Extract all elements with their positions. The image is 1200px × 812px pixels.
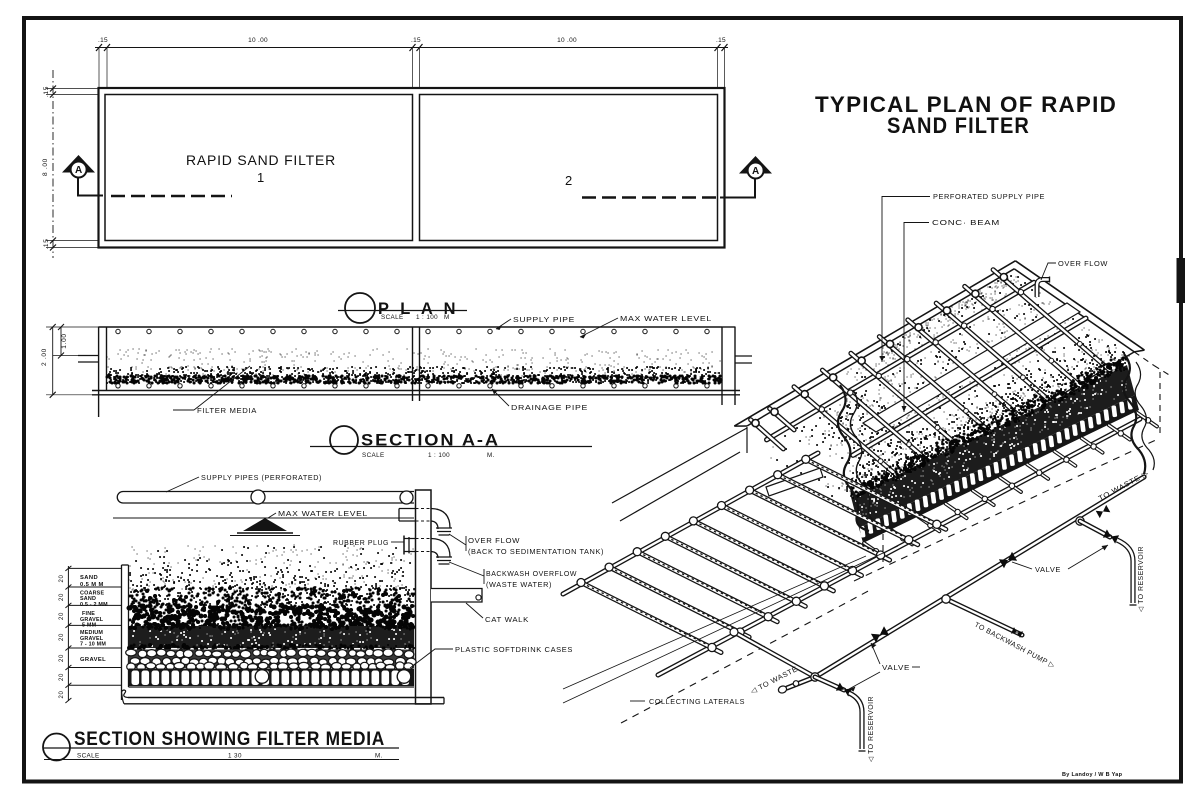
svg-text:8 .00: 8 .00 <box>42 158 49 176</box>
svg-text:RAPID SAND FILTER: RAPID SAND FILTER <box>186 152 336 168</box>
svg-text:PERFORATED SUPPLY PIPE: PERFORATED SUPPLY PIPE <box>933 192 1045 201</box>
svg-text:M: M <box>444 314 450 321</box>
svg-text:MAX WATER LEVEL: MAX WATER LEVEL <box>620 314 712 323</box>
svg-text:SUPPLY PIPES (PERFORATED): SUPPLY PIPES (PERFORATED) <box>201 473 322 482</box>
svg-text:SAND FILTER: SAND FILTER <box>887 113 1030 138</box>
svg-text:20: 20 <box>59 673 65 681</box>
svg-text:SECTION SHOWING FILTER MEDI: SECTION SHOWING FILTER MEDIA <box>74 728 385 750</box>
svg-text:SCALE: SCALE <box>381 314 404 321</box>
svg-text:◁ TO RESERVOIR: ◁ TO RESERVOIR <box>1136 546 1145 612</box>
svg-text:RUBBER PLUG: RUBBER PLUG <box>333 538 389 547</box>
svg-text:FILTER MEDIA: FILTER MEDIA <box>197 406 257 415</box>
svg-text:By Landoy / W B Yap: By Landoy / W B Yap <box>1062 772 1123 778</box>
svg-text:PLASTIC SOFTDRINK CASES: PLASTIC SOFTDRINK CASES <box>455 645 573 654</box>
svg-text:20: 20 <box>59 574 65 582</box>
svg-text:.15: .15 <box>411 37 421 44</box>
svg-text:(BACK TO SEDIMENTATION TANK: (BACK TO SEDIMENTATION TANK) <box>468 547 604 556</box>
svg-text:VALVE: VALVE <box>1035 565 1061 574</box>
svg-text:20: 20 <box>59 612 65 620</box>
svg-text:OVER FLOW: OVER FLOW <box>468 536 520 545</box>
svg-text:SCALE: SCALE <box>77 753 100 760</box>
svg-text:.15: .15 <box>43 238 50 249</box>
svg-text:SUPPLY PIPE: SUPPLY PIPE <box>513 315 575 324</box>
svg-text:SCALE: SCALE <box>362 452 385 459</box>
svg-text:1 30: 1 30 <box>228 753 242 760</box>
svg-text:M.: M. <box>375 753 383 760</box>
svg-text:CONC· BEAM: CONC· BEAM <box>932 218 1000 227</box>
svg-text:7 - 10 MM: 7 - 10 MM <box>80 642 106 648</box>
svg-text:COLLECTING LATERALS: COLLECTING LATERALS <box>649 697 745 706</box>
svg-text:20: 20 <box>59 633 65 641</box>
svg-text:MAX WATER LEVEL: MAX WATER LEVEL <box>278 509 368 518</box>
svg-text:10 .00: 10 .00 <box>557 37 577 44</box>
svg-text:SAND: SAND <box>80 575 98 581</box>
svg-text:A: A <box>75 165 82 176</box>
svg-text:.15: .15 <box>43 86 50 97</box>
svg-text:1 : 100: 1 : 100 <box>428 452 450 459</box>
svg-text:GRAVEL: GRAVEL <box>80 657 106 663</box>
svg-text:M.: M. <box>487 452 495 459</box>
svg-text:10 .00: 10 .00 <box>248 37 268 44</box>
svg-text:0.5 - 2 MM: 0.5 - 2 MM <box>80 602 108 608</box>
svg-text:1.00: 1.00 <box>61 333 68 348</box>
svg-text:2: 2 <box>565 173 573 188</box>
svg-text:2 .00: 2 .00 <box>41 348 48 366</box>
svg-text:OVER FLOW: OVER FLOW <box>1058 259 1108 268</box>
svg-text:1 : 100: 1 : 100 <box>416 314 438 321</box>
svg-text:0.5 M M: 0.5 M M <box>80 582 104 588</box>
svg-text:BACKWASH OVERFLOW: BACKWASH OVERFLOW <box>486 569 577 578</box>
svg-text:20: 20 <box>59 654 65 662</box>
svg-text:DRAINAGE PIPE: DRAINAGE PIPE <box>511 403 588 412</box>
svg-text:◁ TO RESERVOIR: ◁ TO RESERVOIR <box>866 696 875 762</box>
svg-text:.15: .15 <box>98 37 108 44</box>
svg-text:20: 20 <box>59 690 65 698</box>
svg-text:CAT WALK: CAT WALK <box>485 615 529 624</box>
svg-text:(WASTE WATER): (WASTE WATER) <box>486 580 552 589</box>
svg-text:20: 20 <box>59 593 65 601</box>
svg-text:1: 1 <box>257 170 265 185</box>
svg-text:5 MM: 5 MM <box>82 623 97 629</box>
svg-text:.15: .15 <box>716 37 726 44</box>
svg-text:A: A <box>752 166 759 177</box>
svg-text:VALVE: VALVE <box>882 663 910 672</box>
